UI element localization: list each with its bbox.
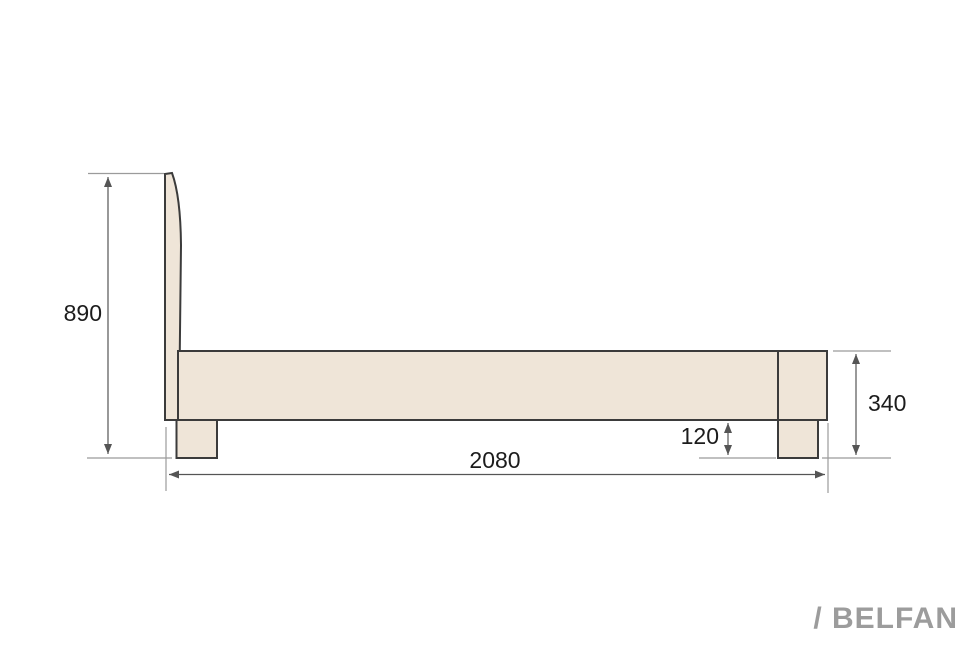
brand-logo: / BELFAN xyxy=(813,602,958,635)
dimension-label-headboard-height: 890 xyxy=(64,300,102,326)
frame-shape xyxy=(178,351,827,420)
bed-side-view-drawing: 890 2080 340 120 / BELFAN xyxy=(0,0,963,649)
dimension-label-overall-length: 2080 xyxy=(469,447,520,473)
bed-parts xyxy=(165,173,827,458)
dimension-headboard-height: 890 xyxy=(64,174,172,459)
dimension-footboard-height: 340 xyxy=(822,351,906,458)
dimension-leg-height: 120 xyxy=(681,423,776,458)
dimension-label-leg-height: 120 xyxy=(681,423,719,449)
dimension-label-footboard-height: 340 xyxy=(868,390,906,416)
technical-drawing-canvas: 890 2080 340 120 / BELFAN xyxy=(0,0,963,649)
